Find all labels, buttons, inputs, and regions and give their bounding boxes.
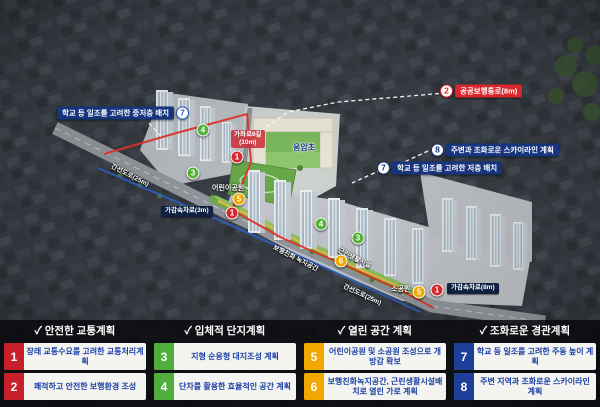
- callout-number-badge: 8: [431, 144, 444, 157]
- legend-item-text: 지형 순응형 대지조성 계획: [174, 343, 296, 370]
- road-name-line: (10m): [234, 139, 262, 147]
- map-marker-3: 3: [352, 232, 365, 245]
- place-label: 응암초: [293, 142, 315, 153]
- legend-item: 5어린이공원 및 소공원 조성으로 개방감 확보: [304, 343, 446, 370]
- legend-section-title: ✓ 조화로운 경관계획: [454, 323, 596, 340]
- map-marker-4: 4: [197, 124, 210, 137]
- map-callout: 8주변과 조화로운 스카이라인 계획: [431, 144, 559, 157]
- legend-item-number: 2: [4, 373, 24, 400]
- map-marker-3: 3: [187, 167, 200, 180]
- legend-section: ✓ 입체적 단지계획3지형 순응형 대지조성 계획4단차를 활용한 효율적인 공…: [150, 320, 300, 407]
- legend-item-text: 어린이공원 및 소공원 조성으로 개방감 확보: [324, 343, 446, 370]
- rotated-road-label: 간선도로(25m): [110, 161, 151, 189]
- callout-number-badge: 7: [176, 107, 189, 120]
- place-label: 소공원: [391, 284, 410, 294]
- rotated-road-label: 보행친화 녹지공간: [272, 242, 321, 273]
- legend-section-title: ✓ 입체적 단지계획: [154, 323, 296, 340]
- legend-section: ✓ 조화로운 경관계획7학교 등 일조를 고려한 주동 높이 계획8주변 지역과…: [450, 320, 600, 407]
- legend-item-text: 보행친화녹지공간, 근린생활시설배치로 열린 가로 계획: [324, 373, 446, 400]
- road-width-tag: 가감속차로(8m): [447, 283, 499, 294]
- map-marker-6: 6: [335, 255, 348, 268]
- map-marker-1: 1: [226, 207, 239, 220]
- place-label: 어린이공원: [212, 183, 244, 193]
- road-name-sign: 가좌로6길(10m): [231, 130, 265, 148]
- map-marker-4: 4: [315, 218, 328, 231]
- aerial-plan-image: 학교 등 일조를 고려한 중저층 배치72공공보행통로(8m)8주변과 조화로운…: [0, 0, 600, 407]
- callout-label: 공공보행통로(8m): [455, 85, 522, 98]
- legend-item-number: 1: [4, 343, 24, 370]
- callout-label: 학교 등 일조를 고려한 저층 배치: [392, 162, 502, 175]
- legend-item-number: 3: [154, 343, 174, 370]
- map-callout: 2공공보행통로(8m): [440, 85, 522, 98]
- road-name-line: 가좌로6길: [234, 131, 262, 139]
- legend-item-text: 단차를 활용한 효율적인 공간 계획: [174, 373, 296, 400]
- legend-section-title: ✓ 안전한 교통계획: [4, 323, 146, 340]
- legend-section-title: ✓ 열린 공간 계획: [304, 323, 446, 340]
- map-marker-1: 1: [231, 151, 244, 164]
- rotated-road-label: 간선도로(25m): [342, 280, 384, 307]
- callout-number-badge: 7: [377, 162, 390, 175]
- callout-label: 주변과 조화로운 스카이라인 계획: [446, 144, 559, 157]
- map-callout: 7학교 등 일조를 고려한 저층 배치: [377, 162, 502, 175]
- callout-number-badge: 2: [440, 85, 453, 98]
- legend-item-number: 4: [154, 373, 174, 400]
- map-callout: 학교 등 일조를 고려한 중저층 배치7: [57, 107, 189, 120]
- map-marker-5: 5: [413, 286, 426, 299]
- legend-section: ✓ 안전한 교통계획1장래 교통수요를 고려한 교통처리계획2쾌적하고 안전한 …: [0, 320, 150, 407]
- callout-label: 학교 등 일조를 고려한 중저층 배치: [57, 107, 174, 120]
- legend-item-number: 6: [304, 373, 324, 400]
- legend-item-number: 7: [454, 343, 474, 370]
- legend-item: 7학교 등 일조를 고려한 주동 높이 계획: [454, 343, 596, 370]
- legend-item: 8주변 지역과 조화로운 스카이라인 계획: [454, 373, 596, 400]
- legend-item: 2쾌적하고 안전한 보행환경 조성: [4, 373, 146, 400]
- road-width-tag: 가감속차로(3m): [161, 206, 213, 217]
- legend-item-text: 학교 등 일조를 고려한 주동 높이 계획: [474, 343, 596, 370]
- legend-section: ✓ 열린 공간 계획5어린이공원 및 소공원 조성으로 개방감 확보6보행친화녹…: [300, 320, 450, 407]
- legend-item-text: 장래 교통수요를 고려한 교통처리계획: [24, 343, 146, 370]
- legend-item: 4단차를 활용한 효율적인 공간 계획: [154, 373, 296, 400]
- map-marker-1: 1: [431, 284, 444, 297]
- legend-item: 6보행친화녹지공간, 근린생활시설배치로 열린 가로 계획: [304, 373, 446, 400]
- legend-item-text: 주변 지역과 조화로운 스카이라인 계획: [474, 373, 596, 400]
- legend-item-text: 쾌적하고 안전한 보행환경 조성: [24, 373, 146, 400]
- legend-item-number: 8: [454, 373, 474, 400]
- legend-item-number: 5: [304, 343, 324, 370]
- legend-bar: ✓ 안전한 교통계획1장래 교통수요를 고려한 교통처리계획2쾌적하고 안전한 …: [0, 320, 600, 407]
- map-marker-5: 5: [233, 193, 246, 206]
- map-overlay: 학교 등 일조를 고려한 중저층 배치72공공보행통로(8m)8주변과 조화로운…: [0, 0, 600, 320]
- legend-item: 1장래 교통수요를 고려한 교통처리계획: [4, 343, 146, 370]
- legend-item: 3지형 순응형 대지조성 계획: [154, 343, 296, 370]
